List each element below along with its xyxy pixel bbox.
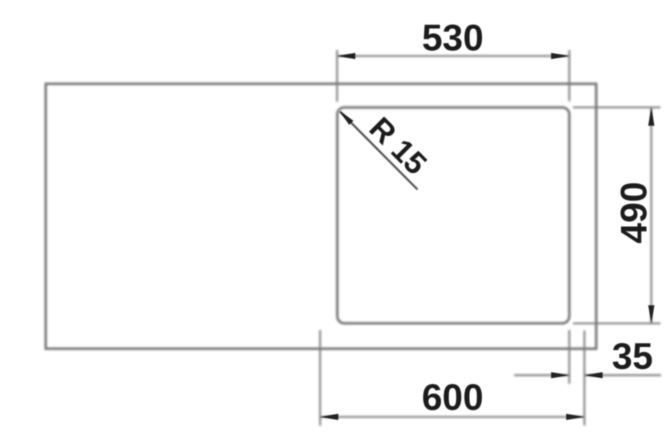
svg-text:600: 600 — [422, 377, 484, 418]
svg-text:35: 35 — [612, 336, 653, 377]
svg-text:530: 530 — [422, 18, 484, 59]
svg-text:490: 490 — [613, 182, 654, 244]
